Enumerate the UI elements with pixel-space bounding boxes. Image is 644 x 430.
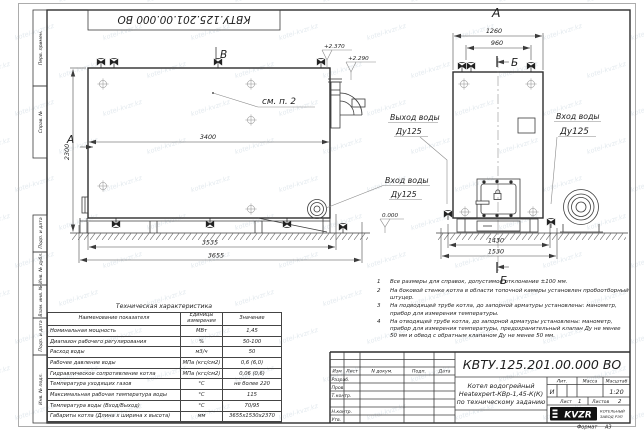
tb-lit-value: И <box>550 388 555 396</box>
see-note-callout: см. п. 2 <box>262 97 296 107</box>
margin-label: Справ. № <box>38 111 44 134</box>
title-block: Изм Лист N докум. Подп. Дата Разраб. Про… <box>330 352 630 430</box>
tb-scale-label: Масштаб <box>606 379 628 385</box>
note-text: Все размеры для справок, допустимое откл… <box>390 279 629 286</box>
top-stamp: КВТУ.125.201.00.000 ВО <box>88 10 280 30</box>
tech-table-cell: °С <box>181 379 223 390</box>
front-view-dims: А 1260 960 Б 1430 1530 Б 0.000 <box>380 5 601 287</box>
dim-3655: 3655 <box>208 252 224 260</box>
company-logo: KVZR КОТЕЛЬНЫЙ ЗАВОД РЭП <box>550 407 625 421</box>
margin-label: Перв. примен. <box>38 31 44 66</box>
margin-label: Инв. № дубл. <box>38 252 44 283</box>
front-base <box>457 219 538 232</box>
tech-table-cell: мм <box>181 412 223 423</box>
tech-table-cell: 50-100 <box>223 337 281 348</box>
tech-table-cell: Температура уходящих газов <box>48 379 181 390</box>
dim-1260: 1260 <box>486 27 502 35</box>
tech-characteristics: Техническая характеристика Наименование … <box>47 303 282 423</box>
side-view-dims: 3400 2300 3535 3655 А В см. п. 2 +2.370 <box>63 44 430 263</box>
format-label: Формат <box>577 425 598 430</box>
tech-table-cell: м3/ч <box>181 347 223 358</box>
tb-row-prov: Пров. <box>332 385 345 391</box>
tb-header-izm: Изм <box>332 369 342 375</box>
tb-lit-label: Лит. <box>556 379 568 385</box>
note-item: 3На подводящей трубе котла, до запорной … <box>377 303 629 317</box>
tech-table-cell: 70/95 <box>223 401 281 412</box>
note-text: На боковой стенке котла в области топочн… <box>390 288 629 302</box>
tb-doc-name-1: Котел водогрейный <box>467 382 534 390</box>
tech-table-cell: Диапазон рабочего регулирования <box>48 337 181 348</box>
side-inlet-dn: Ду125 <box>390 190 417 199</box>
tb-sheets-label: Листов <box>591 399 609 405</box>
margin-label: Инв. № подл. <box>38 373 44 405</box>
tb-sheet-label: Лист <box>559 399 572 405</box>
tech-table-cell: Расход воды <box>48 347 181 358</box>
dim-1530: 1530 <box>488 248 504 256</box>
inlet-flange <box>308 200 327 219</box>
note-text: На подводящей трубе котла, до запорной а… <box>390 303 629 317</box>
tech-table-cell: Температура воды (Вход/Выход) <box>48 401 181 412</box>
note-text: На отводящей трубе котла, до запорной ар… <box>390 319 629 340</box>
note-item: 2На боковой стенке котла в области топоч… <box>377 288 629 302</box>
tech-table-cell: Наименование показателя <box>48 313 181 326</box>
front-inlet-dn: Ду125 <box>559 127 589 137</box>
tech-table-cell: Максимальная рабочая температура воды <box>48 390 181 401</box>
front-inlet-label: Вход воды <box>556 112 600 121</box>
elevation-zero: 0.000 <box>382 213 398 219</box>
tb-header-list: Лист <box>345 369 358 375</box>
note-number: 1 <box>377 279 390 286</box>
tb-scale-value: 1:20 <box>609 388 623 396</box>
tech-table-cell: 1,45 <box>223 326 281 337</box>
tb-sheet-value: 1 <box>578 399 581 405</box>
note-number: 4 <box>377 319 390 340</box>
tech-table-cell: Единицы измерения <box>181 313 223 326</box>
blower-fan <box>560 190 603 233</box>
tb-designation: КВТУ.125.201.00.000 ВО <box>463 357 622 372</box>
view-label-a: А <box>491 5 501 20</box>
tb-row-tkontr: Т.контр. <box>332 393 352 399</box>
tb-row-nkontr: Н.контр. <box>332 409 353 415</box>
note-item: 4На отводящей трубе котла, до запорной а… <box>377 319 629 340</box>
tb-doc-name-3: по техническому заданию <box>457 398 546 406</box>
tech-table-cell: МПа (кгс/см2) <box>181 369 223 380</box>
tb-doc-name-2: Heatexpert-КВр-1,45-К(К) <box>459 390 543 398</box>
tech-table-cell: 0,06 (0,6) <box>223 369 281 380</box>
tech-table-cell: °С <box>181 401 223 412</box>
margin-label: Подп. и дата <box>38 320 44 351</box>
notes-block: 1Все размеры для справок, допустимое отк… <box>377 279 629 342</box>
side-view <box>70 58 370 240</box>
tech-table-cell: Номинальная мощность <box>48 326 181 337</box>
margin-label: Взам. инв. № <box>38 285 44 316</box>
dim-3400: 3400 <box>200 133 216 141</box>
tech-table-cell: 3655х1530х2370 <box>223 412 281 423</box>
sight-glass <box>518 118 535 133</box>
tech-table-cell: % <box>181 337 223 348</box>
tb-header-podp: Подп. <box>412 369 426 375</box>
tech-table-grid: Наименование показателяЕдиницы измерения… <box>47 312 282 423</box>
tb-header-data: Дата <box>438 369 451 375</box>
top-stamp-text: КВТУ.125.201.00.000 ВО <box>117 13 250 25</box>
tb-row-utv: Утв. <box>332 417 342 423</box>
tech-table-cell: Рабочее давление воды <box>48 358 181 369</box>
side-inlet-label: Вход воды <box>385 176 429 185</box>
tech-table-cell: не более 220 <box>223 379 281 390</box>
note-number: 3 <box>377 303 390 317</box>
tech-table-cell: Габариты котла (Длина х ширина х высота) <box>48 412 181 423</box>
margin-column: Перв. примен. Справ. № Подп. и дата Инв.… <box>33 10 47 423</box>
dim-3535: 3535 <box>202 239 218 247</box>
dim-1430: 1430 <box>488 237 504 245</box>
tech-table-title: Техническая характеристика <box>47 303 281 310</box>
tech-table-cell: МВт <box>181 326 223 337</box>
tech-table-cell: 50 <box>223 347 281 358</box>
company-name-2: ЗАВОД РЭП <box>600 414 623 419</box>
elevation-1: +2.370 <box>324 44 345 50</box>
format-value: А3 <box>604 425 612 430</box>
tech-table-cell: 0,6 (6,0) <box>223 358 281 369</box>
section-label-a: А <box>66 134 74 146</box>
front-outlet-label: Выход воды <box>390 113 440 122</box>
front-outlet-dn: Ду125 <box>395 127 422 136</box>
tech-table-cell: 115 <box>223 390 281 401</box>
tech-table-cell: МПа (кгс/см2) <box>181 358 223 369</box>
drawing-sheet: kotel-kvzr.kzkotel-kvzr.kzkotel-kvzr.kzk… <box>0 0 644 430</box>
company-name-1: КОТЕЛЬНЫЙ <box>600 409 625 414</box>
flue-duct <box>328 79 365 128</box>
tech-table-cell: Гидравлическое сопротивление котла <box>48 369 181 380</box>
dim-2300: 2300 <box>63 144 71 160</box>
elevation-2: +2.290 <box>348 56 369 62</box>
section-label-b: В <box>220 49 227 61</box>
tb-header-ndoc: N докум. <box>371 369 392 375</box>
margin-label: Подп. и дата <box>38 217 44 248</box>
note-item: 1Все размеры для справок, допустимое отк… <box>377 279 629 286</box>
dim-960: 960 <box>491 39 503 47</box>
tech-table-cell: Значение <box>223 313 281 326</box>
tb-mass-label: Масса <box>583 379 598 385</box>
tb-row-razrab: Разраб. <box>332 377 350 383</box>
note-number: 2 <box>377 288 390 302</box>
section-mark-b-top: Б <box>511 57 518 69</box>
tb-sheets-value: 2 <box>618 399 622 405</box>
logo-text: KVZR <box>564 411 591 421</box>
front-view <box>436 58 628 272</box>
tech-table-cell: °С <box>181 390 223 401</box>
